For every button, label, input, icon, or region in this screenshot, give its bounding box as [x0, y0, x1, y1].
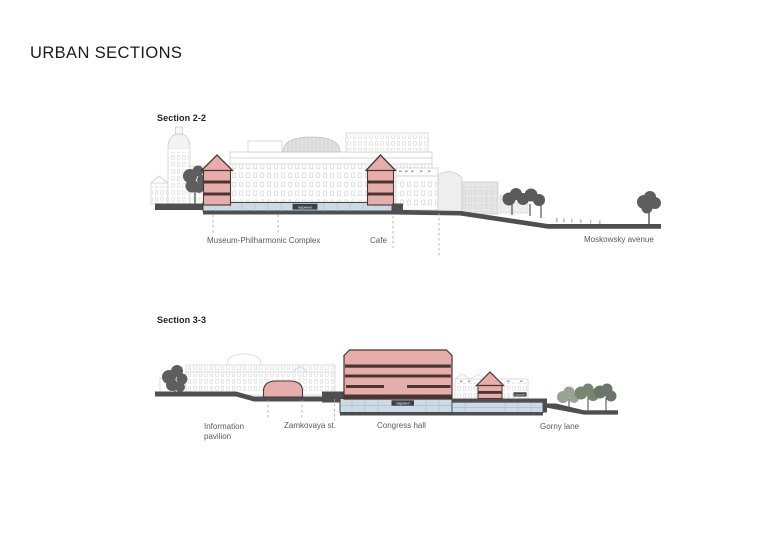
- parking-label: паркинг: [515, 393, 526, 397]
- ground-line: [452, 399, 543, 403]
- parking-label: паркинг: [298, 204, 313, 209]
- congress-hall-section: [344, 350, 452, 399]
- section-3-3-drawing: паркинг: [155, 350, 618, 420]
- parking-label: паркинг: [396, 401, 411, 406]
- pedestrian-marks: [556, 218, 601, 224]
- ground-line: [543, 399, 618, 415]
- parking-sign: паркинг: [514, 392, 527, 396]
- tree-silhouette: [503, 188, 546, 218]
- annotation-congress-hall: Congress hall: [377, 421, 426, 431]
- annotation-museum-philharmonic-complex: Museum-Philharmonic Complex: [207, 236, 320, 246]
- urban-sections-drawing: паркинг: [0, 0, 780, 551]
- tree-silhouette: [637, 191, 661, 224]
- annotation-cafe: Cafe: [370, 236, 387, 246]
- ground-line: [155, 204, 203, 211]
- sectioned-building-museum: [202, 155, 233, 205]
- page: URBAN SECTIONS Section 2-2 Section 3-3: [0, 0, 780, 551]
- annotation-gorny-lane: Gorny lane: [540, 422, 579, 432]
- information-pavilion-section: [264, 381, 303, 397]
- annotation-information-pavilion: Information pavilion: [204, 422, 244, 441]
- annotation-zamkovaya-st: Zamkovaya st.: [284, 421, 336, 431]
- annotation-moskowsky-avenue: Moskowsky avenue: [584, 235, 654, 245]
